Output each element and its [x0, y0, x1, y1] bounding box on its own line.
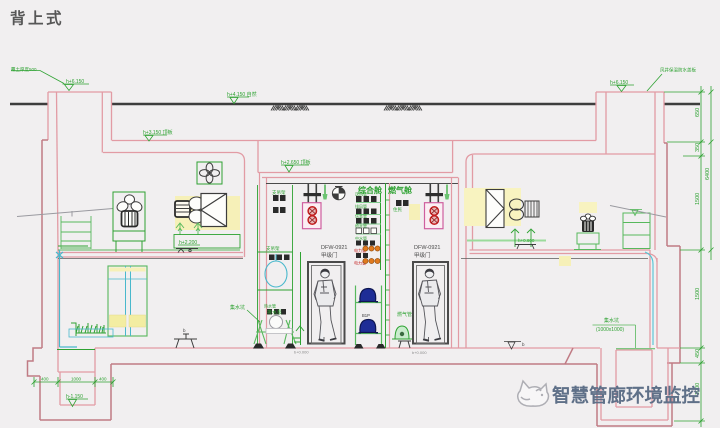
svg-text:DFW-0921: DFW-0921: [414, 245, 441, 251]
svg-text:h+0.600: h+0.600: [518, 238, 535, 243]
svg-text:支吊架: 支吊架: [266, 245, 280, 252]
svg-text:集水坑: 集水坑: [230, 304, 245, 311]
svg-text:背上式: 背上式: [10, 9, 64, 28]
svg-text:覆土厚度500: 覆土厚度500: [11, 66, 37, 73]
svg-text:热水管: 热水管: [264, 303, 276, 309]
svg-text:智慧管廊环境监控: 智慧管廊环境监控: [552, 385, 701, 406]
svg-text:甲级门: 甲级门: [414, 251, 431, 259]
svg-text:燃气管: 燃气管: [397, 311, 412, 318]
svg-text:住民: 住民: [393, 206, 402, 213]
svg-text:排水泵: 排水泵: [267, 309, 282, 316]
svg-text:b+0.000: b+0.000: [294, 350, 309, 355]
svg-text:排风管: 排风管: [355, 203, 367, 209]
svg-text:中水管: 中水管: [355, 235, 367, 241]
svg-text:400: 400: [41, 377, 49, 382]
svg-text:甲级门: 甲级门: [321, 251, 338, 259]
svg-text:h+2.650 顶板: h+2.650 顶板: [281, 159, 311, 166]
svg-text:h-1.150: h-1.150: [66, 394, 83, 400]
svg-text:综合舱: 综合舱: [358, 185, 383, 195]
svg-text:1500: 1500: [695, 193, 701, 205]
svg-text:h+6.150: h+6.150: [66, 79, 84, 85]
svg-text:1500: 1500: [695, 288, 701, 300]
svg-text:(1000x1000): (1000x1000): [596, 327, 624, 333]
svg-text:400: 400: [99, 377, 107, 382]
svg-text:DFW-0921: DFW-0921: [321, 245, 348, 251]
svg-text:风井保温防水盖板: 风井保温防水盖板: [660, 67, 696, 74]
svg-text:350: 350: [695, 143, 701, 152]
svg-text:h+4.150 自然: h+4.150 自然: [227, 91, 257, 98]
svg-text:b+0.000: b+0.000: [412, 350, 427, 355]
svg-text:B1P: B1P: [362, 313, 370, 318]
svg-text:燃气舱: 燃气舱: [388, 185, 413, 195]
svg-text:6400: 6400: [705, 168, 711, 180]
svg-text:h+3.150 顶板: h+3.150 顶板: [143, 129, 173, 136]
svg-text:h+6.150: h+6.150: [610, 80, 628, 86]
svg-text:650: 650: [695, 108, 701, 117]
svg-text:450: 450: [695, 349, 701, 358]
svg-text:支吊架: 支吊架: [272, 189, 286, 196]
svg-text:集水坑: 集水坑: [604, 317, 619, 324]
svg-text:1000: 1000: [71, 377, 82, 382]
